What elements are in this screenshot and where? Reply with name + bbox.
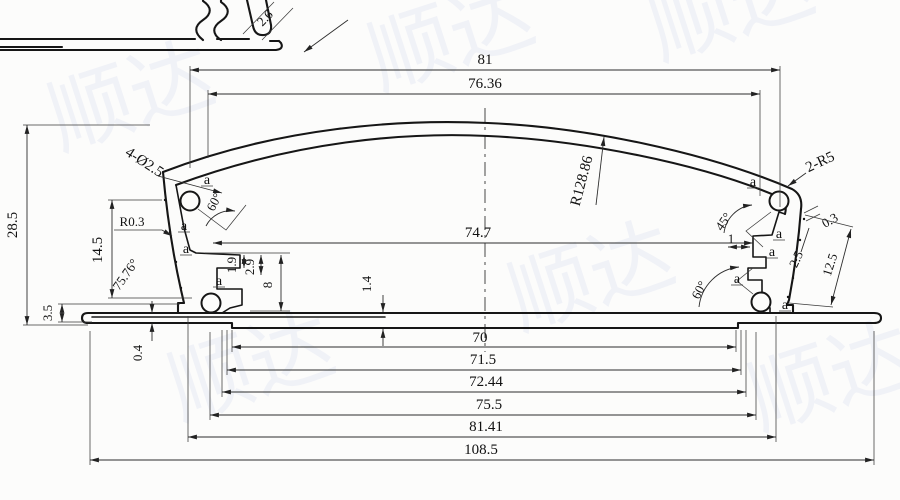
left-wall-outer	[163, 172, 184, 313]
screw-hole-top-left	[181, 192, 200, 211]
angle-reference-lines	[746, 212, 771, 247]
left-wall-serration	[164, 199, 166, 201]
extension-line	[789, 303, 833, 307]
detail-squiggle-right-edge	[214, 0, 228, 40]
dim-serration-step: 0.3	[819, 210, 841, 231]
angle-reference-lines	[198, 205, 246, 230]
dim-boss-angle-left: 60°	[203, 190, 225, 213]
dim-groove-pitch: 2.5	[786, 249, 806, 270]
screw-hole-bottom-right	[752, 293, 771, 312]
right-wall-serration	[792, 277, 794, 279]
left-wall-serration	[169, 231, 171, 233]
dim-lid-width: 76.36	[468, 76, 502, 92]
extension-line	[804, 206, 818, 213]
watermark-text: 顺达	[356, 0, 546, 109]
dome-inner-curve	[176, 135, 786, 214]
dim-face-length: 12.5	[819, 251, 840, 277]
dim-screw-holes: 4-Ø2.5	[122, 144, 166, 180]
screw-hole-bottom-left	[202, 294, 221, 313]
profile-cross-section-drawing: 顺达 顺达 顺达 顺达 顺达 顺达 2.6	[0, 0, 900, 500]
dim-slot-b: 2.9	[242, 259, 257, 275]
detail-leader-line	[304, 20, 348, 52]
dim-tab-width: 1	[728, 231, 735, 246]
dim-base-lip: 0.4	[130, 344, 145, 361]
dim-slot-a: 1.9	[224, 257, 239, 273]
dim-bottom-70: 70	[473, 330, 488, 346]
dim-boss-angle-bottom-right: 60°	[688, 278, 710, 301]
dim-bottom-72-44: 72.44	[469, 374, 503, 390]
dim-floor-thickness: 1.4	[359, 275, 374, 292]
dim-cavity-width: 74.7	[465, 225, 492, 241]
dim-bottom-108-5: 108.5	[464, 442, 498, 458]
detail-thickness-label: 2.6	[254, 6, 276, 28]
dim-dome-radius: R128.86	[568, 154, 597, 208]
leader-screw-holes	[158, 176, 222, 193]
dim-overall-width: 81	[478, 52, 493, 68]
dim-line-groove	[801, 228, 809, 252]
left-wall-serration	[180, 287, 182, 289]
leader-line	[788, 173, 806, 186]
technical-drawing-sheet: 顺达 顺达 顺达 顺达 顺达 顺达 2.6	[0, 0, 900, 500]
right-wall-serration	[799, 239, 801, 241]
dim-bottom-75-5: 75.5	[476, 397, 502, 413]
watermark-text: 顺达	[736, 304, 900, 449]
dim-base-height: 3.5	[40, 305, 55, 321]
base-plate	[82, 313, 881, 328]
screw-hole-top-right	[770, 192, 789, 211]
dim-corner-radius-right: 2-R5	[803, 149, 837, 176]
right-wall-serration	[803, 218, 805, 220]
dim-bottom-71-5: 71.5	[470, 352, 496, 368]
left-wall-serration	[175, 261, 177, 263]
dim-total-height: 28.5	[5, 212, 21, 238]
dim-bottom-81-41: 81.41	[469, 419, 503, 435]
dim-boss-angle-top-right: 45°	[712, 210, 735, 234]
detail-squiggle-left-edge	[196, 0, 210, 40]
watermark-text: 顺达	[636, 0, 826, 79]
dim-wall-angle: 75.76°	[109, 256, 141, 293]
dim-corner-radius-left: R0.3	[120, 214, 145, 229]
dim-side-height: 14.5	[90, 237, 106, 263]
watermark-text: 顺达	[156, 294, 346, 439]
dim-slot-height: 8	[260, 282, 275, 289]
